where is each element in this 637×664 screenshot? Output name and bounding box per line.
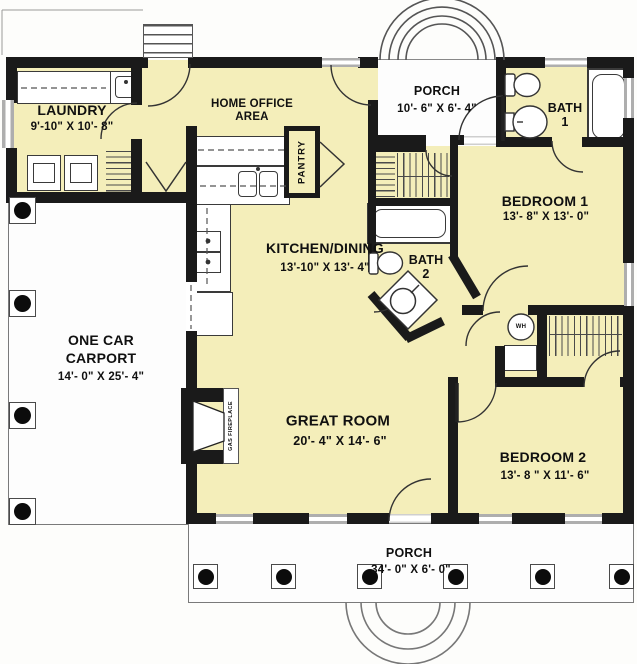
- fireplace-back: [181, 388, 193, 464]
- back-door-threshold: [389, 514, 431, 523]
- kitchen-sink-basin2: [259, 171, 278, 197]
- home-office-label-2: AREA: [235, 111, 268, 123]
- office-desk-counter: [194, 136, 290, 166]
- porch-column-5: [530, 564, 555, 589]
- washer-inner: [33, 163, 55, 183]
- window-office: [322, 58, 360, 67]
- porch-bottom-area: [188, 523, 634, 603]
- carport-label-2: CARPORT: [66, 350, 137, 366]
- bath2-label: BATH: [409, 253, 444, 267]
- porch-top-label: PORCH: [414, 84, 460, 98]
- kitchen-sink-icon: [238, 171, 257, 197]
- walkin-closet-rod: [549, 334, 622, 335]
- bath1-label: BATH: [548, 101, 583, 115]
- floor-plan: LAUNDRY 9'-10" X 10'- 8" HOME OFFICE ARE…: [0, 0, 637, 664]
- carport-dims: 14'- 0" X 25'- 4": [58, 371, 144, 383]
- clothes-rod-icon: [397, 153, 449, 197]
- walkin-closet-hangers: [549, 316, 622, 356]
- bedroom2-label: BEDROOM 2: [500, 449, 587, 465]
- window-greatroom-2: [309, 514, 347, 524]
- fireplace-label: GAS FIREPLACE: [228, 401, 234, 451]
- window-bedroom1-right: [624, 263, 634, 306]
- bathtub-basin: [592, 74, 625, 139]
- porch-bottom-dims: 34'- 0" X 6'- 0": [371, 564, 451, 576]
- shelf-closet-icon: [106, 151, 132, 193]
- bathtub2-basin: [373, 209, 446, 238]
- kitchen-dims: 13'-10" X 13'- 4": [280, 262, 369, 274]
- front-door-threshold: [464, 136, 496, 145]
- range-icon: [196, 231, 221, 252]
- porch-column-6: [609, 564, 634, 589]
- carport-column-4: [9, 498, 36, 525]
- bath2-number: 2: [422, 267, 429, 281]
- water-heater-label: WH: [516, 324, 526, 330]
- carport-label: ONE CAR: [68, 332, 134, 348]
- great-room-label: GREAT ROOM: [286, 413, 390, 430]
- bedroom1-label: BEDROOM 1: [502, 193, 589, 209]
- window-bedroom2-1: [479, 514, 512, 524]
- bath1-number: 1: [561, 115, 568, 129]
- porch-column-2: [271, 564, 296, 589]
- window-icon: [2, 100, 14, 148]
- closet-rod: [397, 176, 449, 177]
- laundry-label: LAUNDRY: [37, 102, 106, 118]
- carport-column-3: [9, 402, 36, 429]
- bedroom1-dims: 13'- 8" X 13'- 0": [503, 211, 589, 223]
- carport-column-2: [9, 290, 36, 317]
- steps-icon: [143, 24, 193, 58]
- porch-column-1: [193, 564, 218, 589]
- porch-top-dims: 10'- 6" X 6'- 4": [397, 103, 477, 115]
- window-bedroom2-2: [565, 514, 602, 524]
- bedroom2-dims: 13'- 8 " X 11'- 6": [500, 470, 589, 482]
- utility-unit: [504, 345, 537, 371]
- arched-entry-icon: [380, 0, 504, 60]
- great-room-dims: 20'- 4" X 14'- 6": [293, 434, 386, 448]
- window-bath1-right: [624, 78, 634, 118]
- porch-bottom-label: PORCH: [386, 546, 432, 560]
- steps-arc-icon: [346, 602, 470, 664]
- carport-door-opening: [186, 282, 197, 331]
- porch-column-icon: [9, 197, 36, 224]
- kitchen-label: KITCHEN/DINING: [266, 240, 384, 256]
- refrigerator-icon: [196, 292, 233, 336]
- laundry-dims: 9'-10" X 10'- 8": [31, 121, 114, 133]
- window-bath1: [545, 58, 587, 67]
- dryer-inner: [70, 163, 92, 183]
- pantry-label: PANTRY: [297, 140, 308, 184]
- home-office-label: HOME OFFICE: [211, 98, 293, 110]
- window-greatroom-1: [216, 514, 253, 524]
- range-burner2: [196, 252, 221, 273]
